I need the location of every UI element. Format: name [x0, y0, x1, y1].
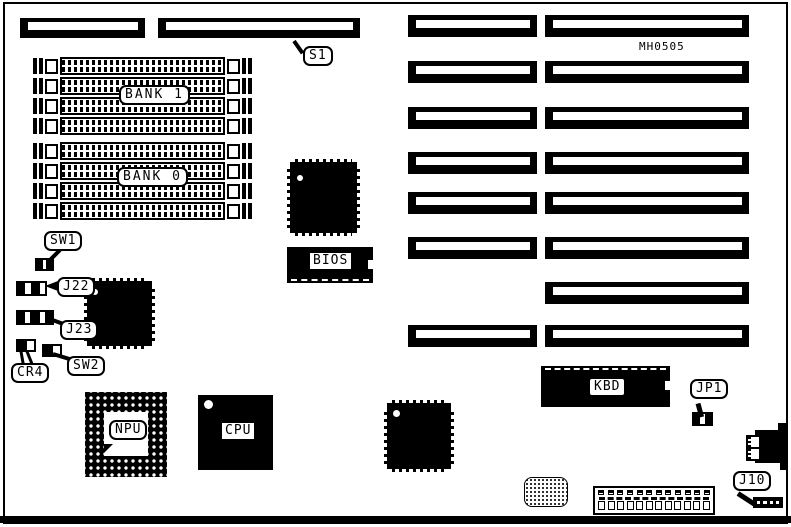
chip-pins	[295, 159, 352, 162]
j10-header	[753, 497, 783, 508]
expansion-slot-short-1	[408, 15, 537, 37]
simm-pin-row	[60, 57, 225, 75]
npu-socket: NPU	[85, 392, 167, 477]
connector-stripe	[28, 22, 138, 30]
s1-callout: S1	[303, 46, 333, 66]
bios-label: BIOS	[310, 253, 351, 269]
chip-pins	[287, 167, 290, 228]
simm-socket-bank1	[33, 57, 252, 75]
chip-pins	[357, 167, 360, 228]
simm-pin-row	[60, 202, 225, 220]
bank0-callout: BANK 0	[117, 167, 188, 187]
simm-latch	[227, 119, 240, 134]
pin-cell	[23, 283, 30, 294]
bank1-callout: BANK 1	[119, 85, 190, 105]
simm-endcap	[33, 143, 43, 159]
pin-cell	[38, 312, 45, 323]
simm-latch	[45, 204, 58, 219]
jp1-callout: JP1	[690, 379, 728, 399]
chip-pins	[392, 469, 446, 472]
expansion-slot-short-4	[408, 152, 537, 174]
simm-endcap	[33, 203, 43, 219]
sw2-callout: SW2	[67, 356, 105, 376]
expansion-slot-long-1	[545, 15, 749, 37]
slot-stripe	[553, 112, 742, 120]
io-chip	[387, 403, 451, 469]
pin1-dot	[204, 400, 213, 409]
slot-stripe	[553, 287, 742, 295]
j23-callout: J23	[60, 320, 98, 340]
chip-pins	[152, 286, 155, 341]
expansion-slot-long-4	[545, 152, 749, 174]
expansion-slot-long-6	[545, 237, 749, 259]
slot-stripe	[553, 66, 742, 74]
slot-stripe	[416, 66, 530, 74]
simm-latch	[227, 144, 240, 159]
simm-latch	[45, 79, 58, 94]
expansion-slot-short-6	[408, 237, 537, 259]
simm-endcap	[242, 98, 252, 114]
j22-header	[16, 281, 47, 296]
sw1-callout: SW1	[44, 231, 82, 251]
pin-cell	[18, 341, 25, 350]
board-code-label: MH0505	[636, 39, 688, 55]
power-connector	[593, 486, 715, 515]
bios-rom-chip: BIOS	[287, 247, 373, 283]
simm-latch	[45, 164, 58, 179]
simm-endcap	[242, 203, 252, 219]
chip-pins	[392, 400, 446, 403]
npu-pointer	[104, 444, 113, 453]
board-bottom-edge	[0, 516, 791, 523]
simm-latch	[227, 204, 240, 219]
simm-endcap	[242, 163, 252, 179]
bios-notch	[368, 260, 373, 269]
kbd-notch	[665, 381, 670, 390]
simm-endcap	[33, 58, 43, 74]
power-dashes	[599, 497, 709, 500]
j10-callout: J10	[733, 471, 771, 491]
slot-stripe	[553, 197, 742, 205]
simm-latch	[45, 184, 58, 199]
j22-callout: J22	[57, 277, 95, 297]
simm-endcap	[242, 58, 252, 74]
chip-pins	[384, 408, 387, 464]
pin-cell	[30, 312, 37, 323]
kbd-label: KBD	[588, 377, 626, 397]
slot-stripe	[553, 330, 742, 338]
simm-endcap	[33, 78, 43, 94]
din-pin-block	[746, 447, 761, 461]
expansion-slot-long-3	[545, 107, 749, 129]
cpu-label: CPU	[222, 423, 254, 439]
expansion-slot-short-3	[408, 107, 537, 129]
slot-stripe	[416, 112, 530, 120]
pin-cell	[757, 501, 760, 504]
slot-stripe	[416, 157, 530, 165]
bios-socket-dashes	[291, 279, 369, 281]
oscillator-component	[524, 477, 568, 507]
pin-cell	[776, 501, 779, 504]
power-pins-top	[598, 490, 710, 496]
slot-stripe	[416, 242, 530, 250]
slot-stripe	[416, 20, 530, 28]
simm-latch	[227, 164, 240, 179]
chip-pins	[295, 233, 352, 236]
simm-endcap	[33, 118, 43, 134]
simm-endcap	[33, 98, 43, 114]
power-pins-bottom	[598, 501, 710, 511]
kbd-chip: KBD	[541, 366, 670, 407]
cr4-callout: CR4	[11, 363, 49, 383]
pin-cell	[770, 501, 773, 504]
kbd-socket-dashes	[545, 368, 666, 370]
simm-latch	[45, 144, 58, 159]
simm-endcap	[242, 78, 252, 94]
simm-endcap	[242, 118, 252, 134]
expansion-slot-long-2	[545, 61, 749, 83]
expansion-slot-long-5	[545, 192, 749, 214]
simm-latch	[227, 184, 240, 199]
chip-pins	[451, 408, 454, 464]
switch-cell	[44, 346, 51, 355]
expansion-slot-long-8	[545, 325, 749, 347]
npu-callout: NPU	[109, 420, 147, 440]
pin-cell	[23, 312, 30, 323]
slot-stripe	[416, 197, 530, 205]
simm-endcap	[33, 163, 43, 179]
simm-latch	[227, 59, 240, 74]
simm-socket-bank0	[33, 142, 252, 160]
simm-pin-row	[60, 117, 225, 135]
simm-latch	[227, 79, 240, 94]
expansion-slot-short-8	[408, 325, 537, 347]
top-edge-connector-right	[158, 18, 360, 38]
simm-socket-bank0	[33, 202, 252, 220]
top-edge-connector-left	[20, 18, 145, 38]
simm-latch	[45, 59, 58, 74]
pin1-dot	[297, 175, 303, 181]
slot-stripe	[553, 242, 742, 250]
cr4-diode	[16, 339, 36, 352]
chip-pins	[92, 346, 147, 349]
pin-cell	[38, 283, 45, 294]
chip-pins	[92, 278, 147, 281]
expansion-slot-short-2	[408, 61, 537, 83]
pin-cell	[763, 501, 766, 504]
cpu-chip: CPU	[198, 395, 273, 470]
pin-cell	[25, 341, 34, 350]
expansion-slot-long-7	[545, 282, 749, 304]
pin-cell	[705, 414, 711, 424]
slot-stripe	[416, 330, 530, 338]
simm-latch	[45, 119, 58, 134]
simm-latch	[227, 99, 240, 114]
bios-adjacent-chip	[290, 162, 357, 233]
expansion-slot-short-5	[408, 192, 537, 214]
pin-cell	[31, 283, 38, 294]
simm-socket-bank1	[33, 117, 252, 135]
simm-pin-row	[60, 142, 225, 160]
simm-latch	[45, 99, 58, 114]
simm-endcap	[242, 183, 252, 199]
connector-stripe	[166, 22, 353, 30]
motherboard-diagram: S1 BANK 1 BANK 0 MH0505 SW1 J22 J23 CR4 …	[0, 0, 791, 527]
simm-endcap	[242, 143, 252, 159]
slot-stripe	[553, 157, 742, 165]
simm-endcap	[33, 183, 43, 199]
slot-stripe	[553, 20, 742, 28]
pin1-dot	[393, 410, 400, 417]
